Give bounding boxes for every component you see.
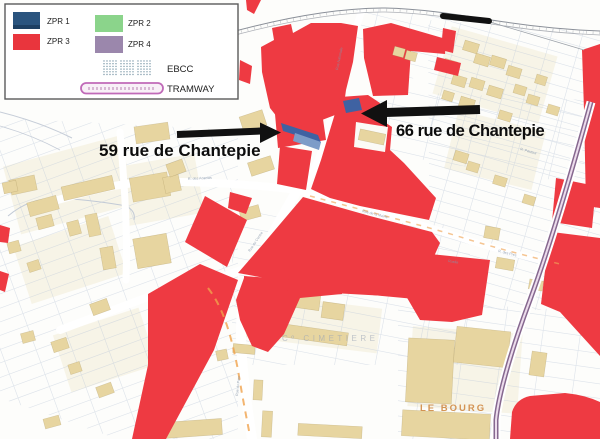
- svg-text:Cº CIMETIERE: Cº CIMETIERE: [282, 334, 378, 343]
- svg-text:ZPR 4: ZPR 4: [128, 40, 151, 49]
- svg-text:ZPR 3: ZPR 3: [47, 37, 70, 46]
- svg-text:TRAMWAY: TRAMWAY: [167, 84, 215, 95]
- svg-text:LE BOURG: LE BOURG: [420, 403, 486, 414]
- svg-text:59 rue de Chantepie: 59 rue de Chantepie: [99, 141, 261, 160]
- svg-text:ZPR 2: ZPR 2: [128, 19, 151, 28]
- svg-text:EBCC: EBCC: [167, 64, 194, 75]
- svg-text:66 rue de Chantepie: 66 rue de Chantepie: [396, 122, 545, 140]
- svg-text:ZPR 1: ZPR 1: [47, 17, 70, 26]
